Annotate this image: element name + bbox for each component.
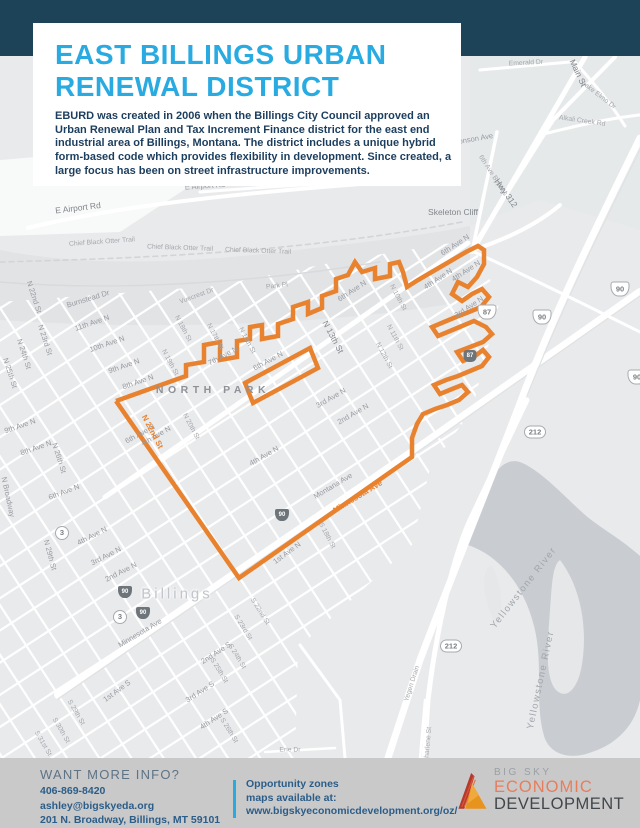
street-label: Charlene St xyxy=(424,727,434,758)
street-label: 8th Ave N xyxy=(121,373,154,391)
footer-resources-line2: maps available at: xyxy=(246,792,457,806)
street-label: 3rd Ave S xyxy=(184,680,215,704)
street-label: 2nd Ave N xyxy=(336,402,370,426)
street-label: N 25th St xyxy=(2,357,19,389)
page-title-line1: EAST BILLINGS URBAN xyxy=(55,39,387,70)
highway-shield-90: 90 xyxy=(275,509,289,521)
footer-contact-block: 406-869-8420 ashley@bigskyeda.org 201 N.… xyxy=(40,784,220,828)
street-label: N 22nd St xyxy=(25,280,42,314)
street-label: S 23rd St xyxy=(232,614,253,642)
street-label: S 26th St xyxy=(218,717,239,744)
street-label: 2nd Ave N xyxy=(104,561,138,583)
street-label: 4th Ave N xyxy=(450,259,481,283)
logo-line-economic: ECONOMIC xyxy=(494,779,624,796)
big-sky-logo-mark-icon xyxy=(455,766,489,814)
street-label: 3rd Ave N xyxy=(90,545,123,567)
flyer-page: { "card": { "title_line1": "EAST BILLING… xyxy=(0,0,640,828)
street-label: Park Pl xyxy=(266,282,289,291)
footer-email[interactable]: ashley@bigskyeda.org xyxy=(40,799,220,814)
city-label: Billings xyxy=(141,587,213,602)
footer-resources-line1: Opportunity zones xyxy=(246,778,457,792)
street-label: N 26th St xyxy=(51,442,68,474)
highway-shield-90: 90 xyxy=(533,310,552,325)
street-label: Alkali Creek Rd xyxy=(558,115,605,128)
big-sky-logo-text: BIG SKY ECONOMIC DEVELOPMENT xyxy=(494,767,624,813)
street-label: 10th Ave N xyxy=(88,335,125,354)
river-label: Yellowstone River xyxy=(526,630,556,730)
street-label: S 18th St xyxy=(316,522,335,550)
street-label: Chief Black Otter Trail xyxy=(69,237,135,248)
street-label: 7th Ave N xyxy=(207,345,239,367)
street-label: N 10th St xyxy=(387,284,406,312)
street-label: N 18th St xyxy=(172,315,191,343)
highway-shield-87: 87 xyxy=(478,305,497,320)
highway-shield-87: 87 xyxy=(464,350,477,362)
street-label: 4th Ave N xyxy=(422,267,453,291)
street-label: 8th Ave N xyxy=(19,439,52,457)
street-label: 11th Ave N xyxy=(74,314,110,333)
street-label: 4th Ave N xyxy=(248,445,280,468)
footer-phone: 406-869-8420 xyxy=(40,784,220,799)
street-label: N 12th St xyxy=(373,342,392,370)
street-label: N 29th St xyxy=(42,539,57,571)
north-park-label: NORTH PARK xyxy=(156,385,270,396)
street-label: Hwy 312 xyxy=(493,177,519,209)
footer-address: 201 N. Broadway, Billings, MT 59101 xyxy=(40,813,220,828)
footer-bar: WANT MORE INFO? 406-869-8420 ashley@bigs… xyxy=(0,758,640,828)
street-label: S 22nd St xyxy=(248,598,270,627)
street-label: S 29th St xyxy=(65,699,85,727)
street-label: Burnstead Dr xyxy=(66,289,110,309)
street-label: Chief Black Otter Trail xyxy=(147,244,213,253)
street-label: 6th Ave N xyxy=(252,350,284,372)
street-label: Lake Elmo Dr xyxy=(580,81,617,112)
street-label: 6th Ave N xyxy=(48,483,81,502)
street-label: E Airport Rd xyxy=(55,201,102,215)
street-label: S 31st St xyxy=(32,730,52,757)
street-label: N Broadway xyxy=(0,476,16,518)
street-label: Vuecrest Dr xyxy=(179,288,215,307)
highway-shield-90: 90 xyxy=(628,370,640,385)
street-label: Emerald Dr xyxy=(509,60,544,69)
river-label: Yellowstone River xyxy=(489,545,558,630)
street-label: 3rd Ave N xyxy=(315,387,347,410)
street-label: 4th Ave N xyxy=(76,525,108,546)
page-title-line2: RENEWAL DISTRICT xyxy=(55,71,339,102)
street-label: N 11th St xyxy=(384,324,403,352)
page-title: EAST BILLINGS URBAN RENEWAL DISTRICT xyxy=(55,39,441,103)
intro-paragraph: EBURD was created in 2006 when the Billi… xyxy=(55,110,453,179)
highway-shield-3: 3 xyxy=(55,526,69,540)
street-label: Chief Black Otter Trail xyxy=(225,247,291,256)
street-label: S 30th St xyxy=(50,717,70,745)
footer-heading: WANT MORE INFO? xyxy=(40,767,180,782)
street-label: 1st Ave S xyxy=(102,679,132,704)
highway-shield-212: 212 xyxy=(524,426,546,439)
title-card: EAST BILLINGS URBAN RENEWAL DISTRICT EBU… xyxy=(33,23,461,186)
logo-line-development: DEVELOPMENT xyxy=(494,796,624,813)
street-label: 6th Ave N xyxy=(336,279,367,303)
street-label: N 23rd St xyxy=(37,324,54,356)
street-label: N 13th St xyxy=(321,319,345,354)
street-label: S 24th St xyxy=(226,643,247,670)
street-label: 1st Ave N xyxy=(272,541,302,566)
highway-shield-90: 90 xyxy=(136,607,150,619)
highway-shield-3: 3 xyxy=(113,610,127,624)
street-label: 9th Ave N xyxy=(3,417,36,435)
highway-shield-90: 90 xyxy=(118,586,132,598)
big-sky-logo: BIG SKY ECONOMIC DEVELOPMENT xyxy=(455,766,624,814)
street-label: N 19th St xyxy=(159,349,178,377)
footer-resources-block: Opportunity zones maps available at: www… xyxy=(246,778,457,819)
street-label: N 20th St xyxy=(180,413,199,441)
footer-resources-url[interactable]: www.bigskyeconomicdevelopment.org/oz/ xyxy=(246,805,457,819)
street-label: Yegen Drain xyxy=(404,665,422,702)
street-label: N 17th St xyxy=(204,323,223,351)
highway-shield-212: 212 xyxy=(440,640,462,653)
street-label: 6th Ave N xyxy=(439,233,470,257)
street-label: 9th Ave N xyxy=(107,357,140,375)
highway-shield-90: 90 xyxy=(611,282,630,297)
footer-divider xyxy=(233,780,236,818)
street-label: N 16th St xyxy=(236,327,255,355)
street-label: N 24th St xyxy=(16,338,33,370)
street-label: Skeleton Cliff xyxy=(428,208,478,217)
street-label: Erie Dr xyxy=(279,748,300,755)
